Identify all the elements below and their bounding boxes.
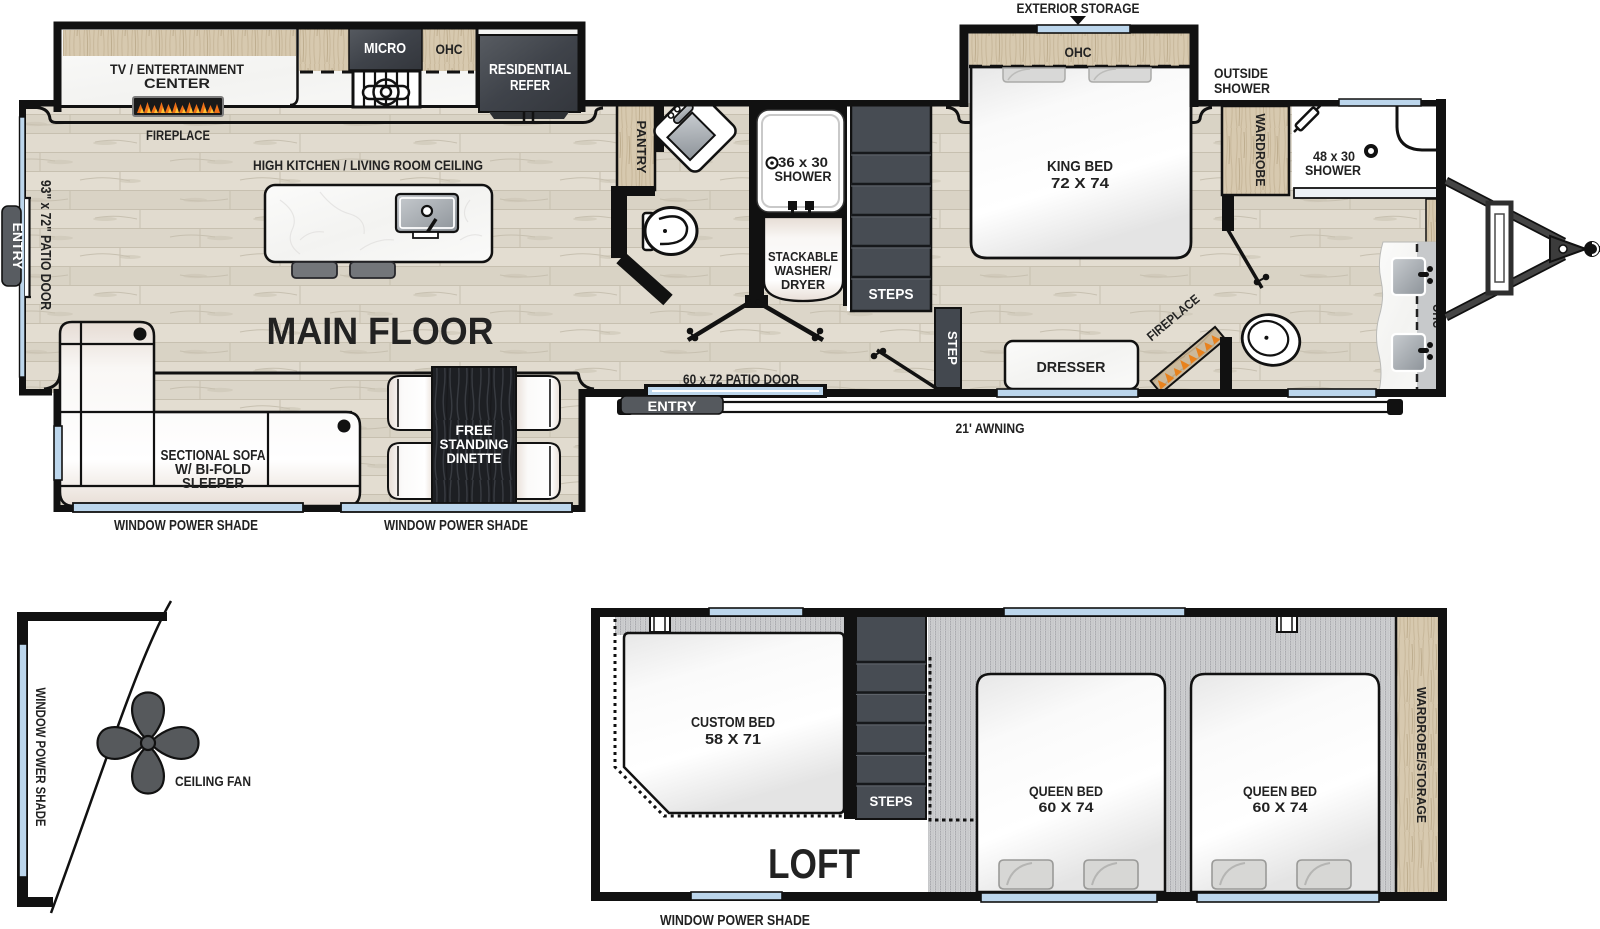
svg-text:ENTRY: ENTRY — [648, 398, 698, 414]
svg-text:SHOWER: SHOWER — [1214, 80, 1270, 96]
svg-text:60 X 74: 60 X 74 — [1253, 799, 1308, 815]
svg-text:DRESSER: DRESSER — [1037, 359, 1106, 376]
svg-text:QUEEN BED: QUEEN BED — [1243, 783, 1317, 799]
svg-text:WASHER/: WASHER/ — [775, 263, 832, 278]
svg-text:CUSTOM BED: CUSTOM BED — [691, 715, 775, 731]
svg-text:72 X 74: 72 X 74 — [1051, 175, 1110, 192]
svg-text:SLEEPER: SLEEPER — [182, 476, 244, 492]
svg-text:STEPS: STEPS — [869, 287, 914, 303]
svg-text:MAIN FLOOR: MAIN FLOOR — [267, 311, 494, 353]
svg-text:QUEEN BED: QUEEN BED — [1029, 783, 1103, 799]
svg-text:TV / ENTERTAINMENT: TV / ENTERTAINMENT — [110, 62, 245, 77]
svg-text:HIGH KITCHEN / LIVING ROOM CEI: HIGH KITCHEN / LIVING ROOM CEILING — [253, 157, 483, 173]
svg-text:REFER: REFER — [510, 77, 550, 94]
svg-text:WARDROBE: WARDROBE — [1253, 114, 1268, 187]
svg-text:48 x 30: 48 x 30 — [1313, 149, 1355, 164]
svg-text:OHC: OHC — [436, 41, 463, 57]
svg-text:SHOWER: SHOWER — [1305, 163, 1361, 178]
svg-text:EXTERIOR STORAGE: EXTERIOR STORAGE — [1017, 0, 1140, 16]
svg-text:SHOWER: SHOWER — [775, 169, 832, 184]
svg-text:WARDROBE/STORAGE: WARDROBE/STORAGE — [1414, 687, 1429, 823]
svg-text:STACKABLE: STACKABLE — [768, 249, 838, 264]
svg-text:ENTRY: ENTRY — [10, 223, 25, 270]
svg-text:RESIDENTIAL: RESIDENTIAL — [489, 61, 571, 78]
svg-text:CENTER: CENTER — [144, 76, 210, 91]
svg-text:21' AWNING: 21' AWNING — [956, 421, 1025, 436]
svg-text:OHC: OHC — [1065, 44, 1092, 60]
svg-text:WINDOW POWER SHADE: WINDOW POWER SHADE — [114, 517, 258, 534]
svg-text:PANTRY: PANTRY — [634, 121, 649, 174]
svg-text:KING BED: KING BED — [1047, 158, 1113, 175]
svg-text:WINDOW POWER SHADE: WINDOW POWER SHADE — [660, 912, 810, 929]
svg-text:CEILING FAN: CEILING FAN — [175, 774, 251, 789]
svg-text:60 x 72 PATIO DOOR: 60 x 72 PATIO DOOR — [683, 372, 799, 387]
svg-text:FIREPLACE: FIREPLACE — [146, 128, 210, 143]
svg-text:93" x 72" PATIO DOOR: 93" x 72" PATIO DOOR — [37, 180, 53, 310]
svg-text:WINDOW POWER SHADE: WINDOW POWER SHADE — [33, 688, 49, 827]
svg-text:DRYER: DRYER — [781, 277, 826, 292]
svg-text:36 x 30: 36 x 30 — [778, 155, 828, 170]
svg-text:DINETTE: DINETTE — [447, 450, 502, 466]
svg-text:58 X 71: 58 X 71 — [705, 732, 761, 748]
svg-text:OUTSIDE: OUTSIDE — [1214, 65, 1268, 81]
svg-text:STEP: STEP — [945, 331, 960, 365]
svg-text:LOFT: LOFT — [768, 840, 860, 887]
svg-text:MICRO: MICRO — [364, 40, 406, 57]
svg-text:WINDOW POWER SHADE: WINDOW POWER SHADE — [384, 517, 528, 534]
svg-text:60 X 74: 60 X 74 — [1039, 799, 1094, 815]
svg-text:STEPS: STEPS — [870, 793, 913, 809]
